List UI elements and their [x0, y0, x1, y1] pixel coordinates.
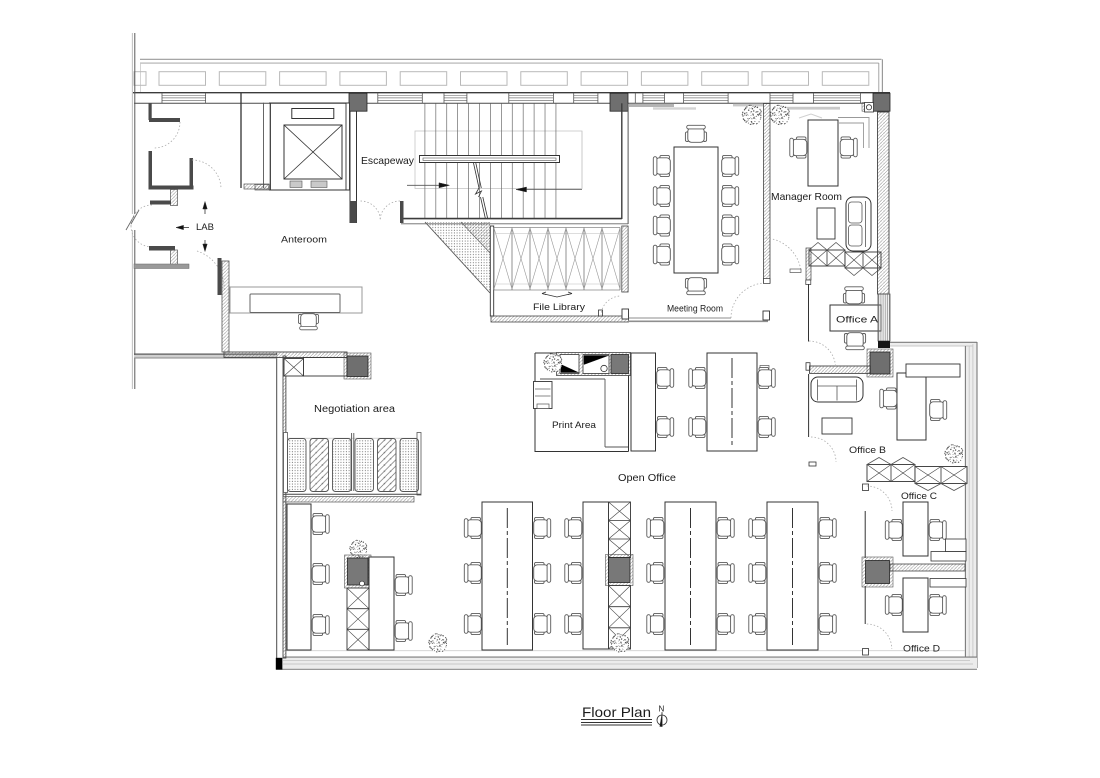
svg-text:N: N: [659, 705, 665, 714]
svg-text:Office C: Office C: [901, 491, 937, 502]
svg-text:Office A: Office A: [836, 315, 879, 326]
svg-text:Open Office: Open Office: [618, 473, 676, 484]
svg-text:Meeting Room: Meeting Room: [667, 304, 723, 314]
svg-text:Floor Plan: Floor Plan: [582, 704, 651, 720]
svg-text:Escapeway: Escapeway: [361, 155, 415, 167]
svg-text:Print Area: Print Area: [552, 420, 597, 431]
svg-text:Office D: Office D: [903, 644, 940, 655]
svg-text:Manager Room: Manager Room: [771, 191, 842, 203]
svg-text:File Library: File Library: [533, 302, 586, 312]
svg-text:Office B: Office B: [849, 445, 886, 456]
svg-text:Anteroom: Anteroom: [281, 235, 327, 245]
svg-text:Negotiation area: Negotiation area: [314, 404, 395, 415]
svg-text:LAB: LAB: [196, 222, 214, 233]
